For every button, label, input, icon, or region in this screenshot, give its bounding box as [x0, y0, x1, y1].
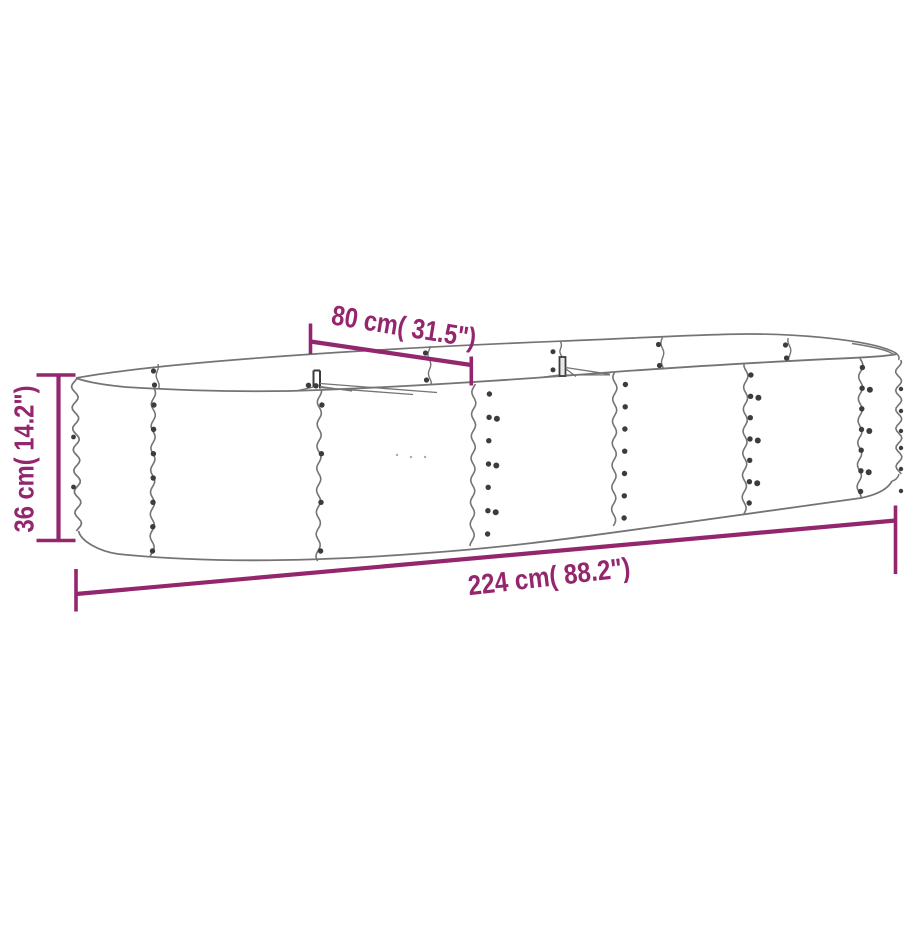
svg-text:36 cm( 14.2"): 36 cm( 14.2"): [9, 386, 40, 533]
